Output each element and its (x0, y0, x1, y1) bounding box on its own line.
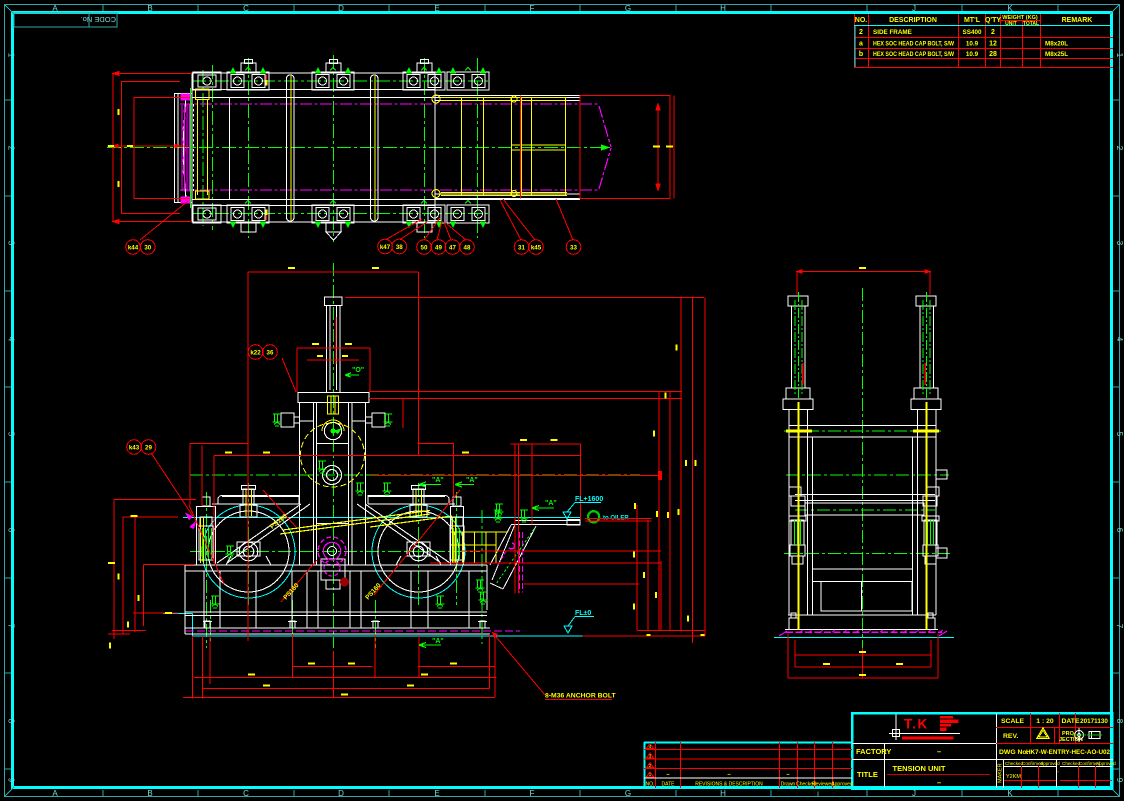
svg-text:5: 5 (1115, 432, 1124, 437)
svg-text:': ' (1058, 771, 1059, 777)
svg-text:A: A (52, 789, 58, 798)
svg-text:Q'TY: Q'TY (985, 17, 1001, 24)
svg-text:Y2KM: Y2KM (1006, 774, 1021, 780)
svg-text:1 : 20: 1 : 20 (1036, 718, 1054, 725)
svg-text:TITLE: TITLE (857, 770, 878, 779)
svg-text:–: – (937, 778, 941, 787)
svg-text:TENSION UNIT: TENSION UNIT (893, 764, 946, 773)
svg-text:7: 7 (1115, 624, 1124, 629)
svg-text:HEX SOC HEAD CAP BOLT, S/W: HEX SOC HEAD CAP BOLT, S/W (873, 51, 954, 58)
svg-text:2: 2 (7, 146, 16, 151)
svg-text:B: B (147, 789, 152, 798)
svg-text:8: 8 (7, 719, 16, 724)
svg-text:9: 9 (1115, 778, 1124, 783)
svg-text:–: – (937, 747, 941, 756)
svg-text:6: 6 (1115, 528, 1124, 533)
svg-text:SCALE: SCALE (1001, 718, 1025, 725)
svg-text:D: D (338, 4, 344, 13)
svg-text:Checked: Checked (1062, 761, 1081, 766)
svg-text:D: D (338, 789, 344, 798)
svg-text:CODE No.: CODE No. (81, 15, 116, 24)
svg-text:HEX SOC HEAD CAP BOLT, S/W: HEX SOC HEAD CAP BOLT, S/W (873, 41, 954, 48)
svg-text:SS400: SS400 (963, 29, 982, 36)
svg-text:10.9: 10.9 (966, 41, 979, 48)
svg-text:TOTAL: TOTAL (1023, 21, 1039, 27)
svg-text:Approved: Approved (1040, 761, 1060, 766)
svg-text:K: K (1007, 789, 1013, 798)
svg-text:30: 30 (144, 245, 151, 252)
svg-text:48: 48 (464, 245, 471, 252)
svg-text:8: 8 (1115, 719, 1124, 724)
svg-text:47: 47 (449, 245, 456, 252)
svg-text:6: 6 (7, 528, 16, 533)
svg-text:SIDE FRAME: SIDE FRAME (873, 29, 912, 36)
svg-text:49: 49 (435, 245, 442, 252)
svg-text:2: 2 (1115, 146, 1124, 151)
svg-text:Drawn: Drawn (781, 782, 796, 788)
svg-text:HK7-W-ENTRY-HEC-AO-U02: HK7-W-ENTRY-HEC-AO-U02 (1026, 749, 1110, 756)
svg-text:9: 9 (7, 778, 16, 783)
svg-text:2: 2 (991, 29, 995, 36)
svg-text:DESCRIPTION: DESCRIPTION (889, 17, 937, 24)
svg-text:J: J (912, 4, 916, 13)
svg-text:31: 31 (518, 245, 525, 252)
svg-text:10.9: 10.9 (966, 51, 979, 58)
svg-text:33: 33 (570, 245, 577, 252)
svg-text:H: H (720, 4, 726, 13)
svg-text:FL±0: FL±0 (575, 610, 591, 617)
svg-text:G: G (625, 789, 631, 798)
svg-text:12: 12 (989, 41, 997, 48)
svg-text:50: 50 (421, 245, 428, 252)
svg-text:F: F (530, 789, 535, 798)
svg-text:"A": "A" (432, 638, 444, 645)
svg-text:NO.: NO. (646, 782, 655, 788)
svg-text:Approved: Approved (1096, 761, 1116, 766)
svg-text:FL+1600: FL+1600 (575, 496, 603, 503)
svg-text:b: b (859, 51, 863, 58)
svg-text:K: K (1007, 4, 1013, 13)
svg-text:UNIT: UNIT (1005, 21, 1017, 27)
svg-text:B: B (147, 4, 152, 13)
svg-text:1: 1 (7, 53, 16, 58)
svg-text:REVISIONS & DESCRIPTION: REVISIONS & DESCRIPTION (695, 782, 763, 788)
svg-text:REMARK: REMARK (1062, 17, 1093, 24)
svg-text:E: E (434, 4, 439, 13)
svg-text:38: 38 (396, 244, 403, 251)
svg-text:NO.: NO. (855, 17, 868, 24)
svg-text:a: a (859, 41, 863, 48)
svg-text:T.K: T.K (904, 717, 929, 732)
svg-text:DATE: DATE (662, 782, 676, 788)
svg-text:5: 5 (7, 432, 16, 437)
svg-text:DATE: DATE (1062, 718, 1080, 725)
svg-text:J: J (912, 789, 916, 798)
svg-text:Checked: Checked (1005, 761, 1024, 766)
svg-text:G: G (625, 4, 631, 13)
svg-text:36: 36 (267, 350, 274, 357)
svg-text:3: 3 (7, 241, 16, 246)
svg-text:1: 1 (1115, 53, 1124, 58)
svg-text:MAKER: MAKER (998, 763, 1004, 783)
svg-text:M8x20L: M8x20L (1045, 41, 1068, 48)
svg-text:REV.: REV. (1003, 733, 1018, 740)
svg-text:MT'L: MT'L (964, 17, 981, 24)
svg-text:"O": "O" (352, 367, 364, 374)
svg-text:7: 7 (7, 624, 16, 629)
svg-text:8-M36 ANCHOR BOLT: 8-M36 ANCHOR BOLT (545, 693, 616, 700)
svg-text:k22: k22 (250, 350, 261, 357)
svg-text:DWG No.: DWG No. (999, 749, 1029, 756)
svg-text:29: 29 (145, 445, 152, 452)
svg-text:"A": "A" (432, 477, 444, 484)
svg-text:I: I (817, 792, 819, 799)
svg-text:M8x25L: M8x25L (1045, 51, 1068, 58)
svg-text:H: H (720, 789, 726, 798)
svg-text:FACTORY: FACTORY (856, 747, 891, 756)
svg-text:C: C (243, 4, 249, 13)
svg-text:"A": "A" (545, 500, 557, 507)
svg-text:E: E (434, 789, 439, 798)
svg-text:4: 4 (1115, 337, 1124, 342)
svg-text:k47: k47 (380, 244, 391, 251)
svg-text:k43: k43 (129, 445, 140, 452)
svg-text:"A": "A" (466, 477, 478, 484)
svg-text:k44: k44 (128, 245, 139, 252)
svg-text:C: C (243, 789, 249, 798)
svg-text:k45: k45 (531, 245, 542, 252)
svg-text:F: F (530, 4, 535, 13)
svg-text:A: A (52, 4, 58, 13)
svg-text:3: 3 (1115, 241, 1124, 246)
svg-text:4: 4 (7, 337, 16, 342)
svg-text:28: 28 (989, 51, 997, 58)
svg-text:Approved: Approved (831, 782, 853, 788)
svg-text:20171130: 20171130 (1080, 718, 1108, 725)
svg-text:2: 2 (859, 29, 863, 36)
